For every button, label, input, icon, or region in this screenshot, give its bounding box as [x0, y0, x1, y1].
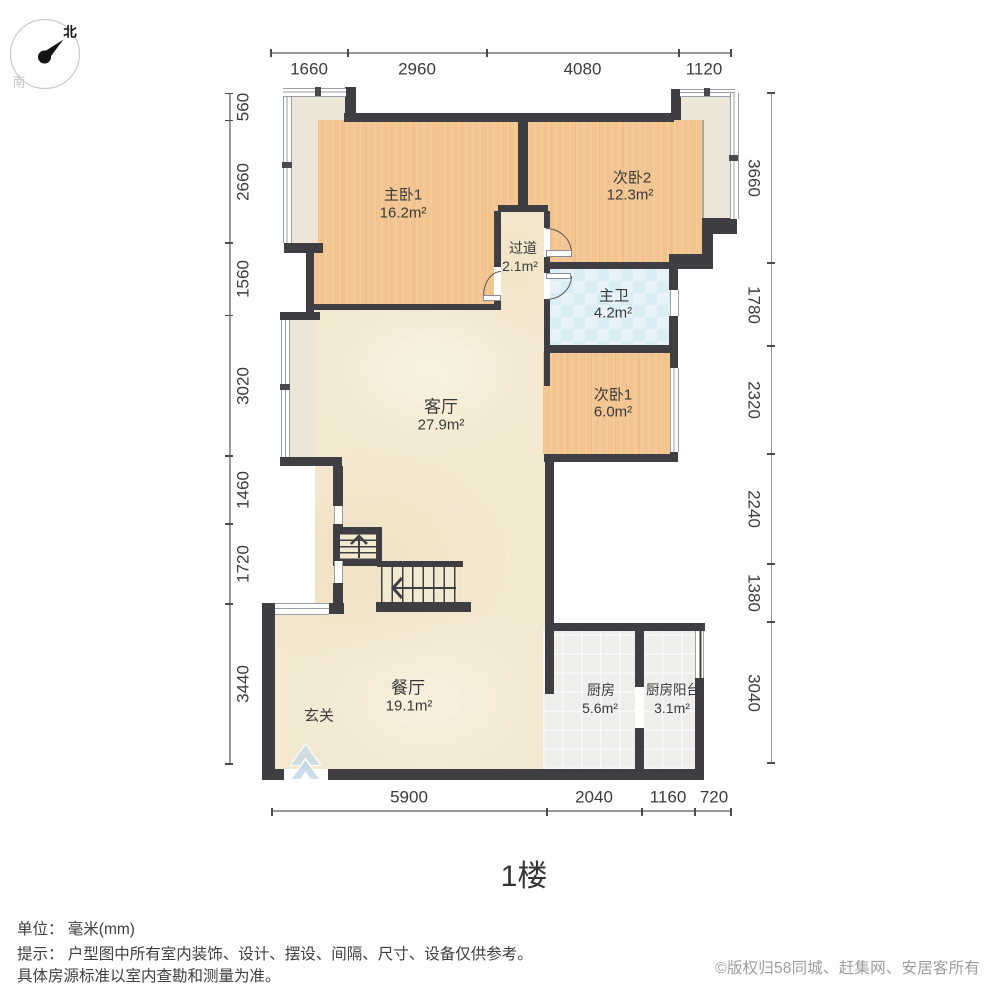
svg-text:南: 南 — [12, 74, 25, 89]
svg-text:北: 北 — [63, 25, 77, 40]
